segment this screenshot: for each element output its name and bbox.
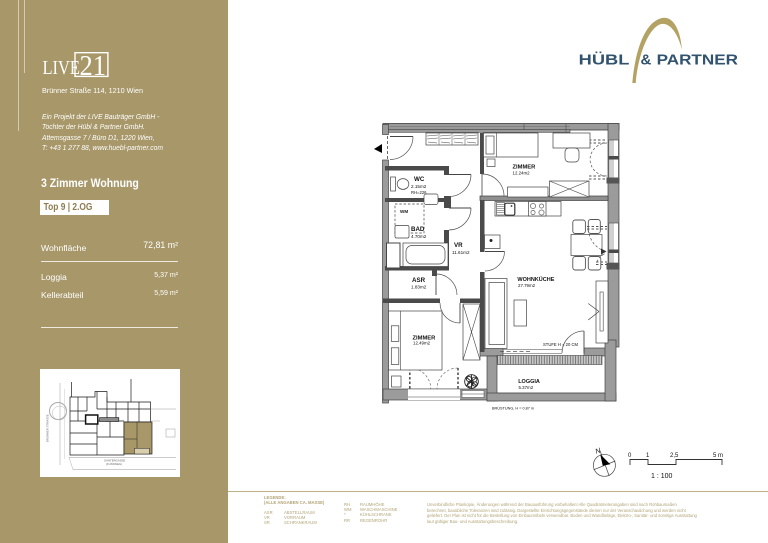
svg-text:VR: VR [454, 242, 463, 249]
svg-text:STUFE H = 20 CM: STUFE H = 20 CM [543, 342, 579, 347]
svg-text:0: 0 [628, 453, 632, 459]
svg-text:1: 1 [646, 453, 650, 459]
svg-text:1.83m2: 1.83m2 [411, 285, 427, 290]
svg-text:BRÜSTUNG, H = 0.87 m: BRÜSTUNG, H = 0.87 m [492, 407, 534, 411]
svg-text:2,5: 2,5 [670, 453, 679, 459]
svg-text:ASR: ASR [412, 277, 426, 284]
svg-text:12.49m2: 12.49m2 [413, 341, 431, 346]
svg-text:WM: WM [400, 209, 408, 214]
svg-text:RH=226: RH=226 [411, 190, 427, 195]
svg-text:WC: WC [414, 176, 425, 183]
svg-text:2.15m2: 2.15m2 [411, 184, 427, 189]
svg-text:11.61m2: 11.61m2 [452, 250, 470, 255]
svg-text:WOHNKÜCHE: WOHNKÜCHE [517, 276, 554, 283]
svg-text:1 : 100: 1 : 100 [651, 473, 673, 480]
svg-text:4.70m2: 4.70m2 [411, 234, 427, 239]
svg-text:12.24m2: 12.24m2 [513, 171, 531, 176]
svg-text:5.37m2: 5.37m2 [519, 385, 534, 390]
svg-text:27.79m2: 27.79m2 [518, 283, 536, 288]
svg-text:BAD: BAD [411, 226, 425, 233]
svg-text:5 m: 5 m [713, 453, 723, 459]
